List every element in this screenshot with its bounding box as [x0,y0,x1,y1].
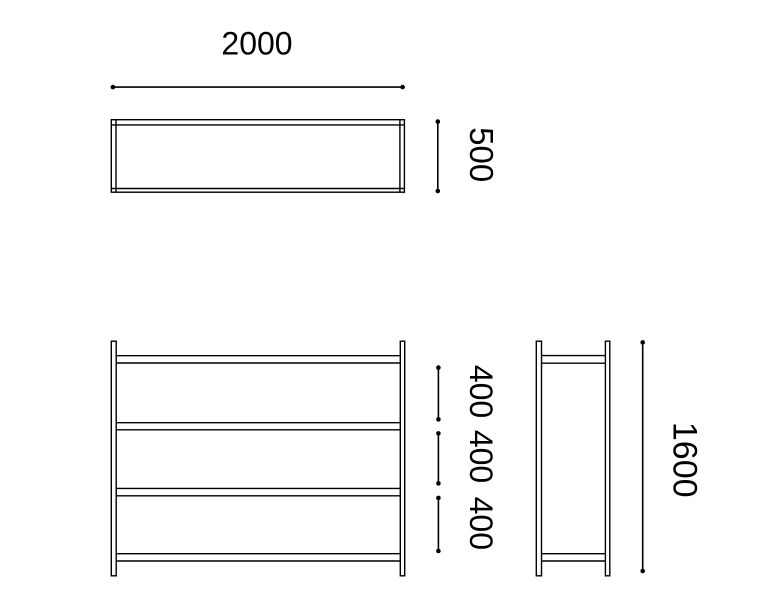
svg-text:2000: 2000 [221,26,292,62]
svg-text:1600: 1600 [666,422,704,498]
svg-text:400: 400 [463,497,499,550]
svg-text:400: 400 [463,365,499,418]
svg-text:500: 500 [463,127,500,182]
svg-text:400: 400 [463,430,499,483]
